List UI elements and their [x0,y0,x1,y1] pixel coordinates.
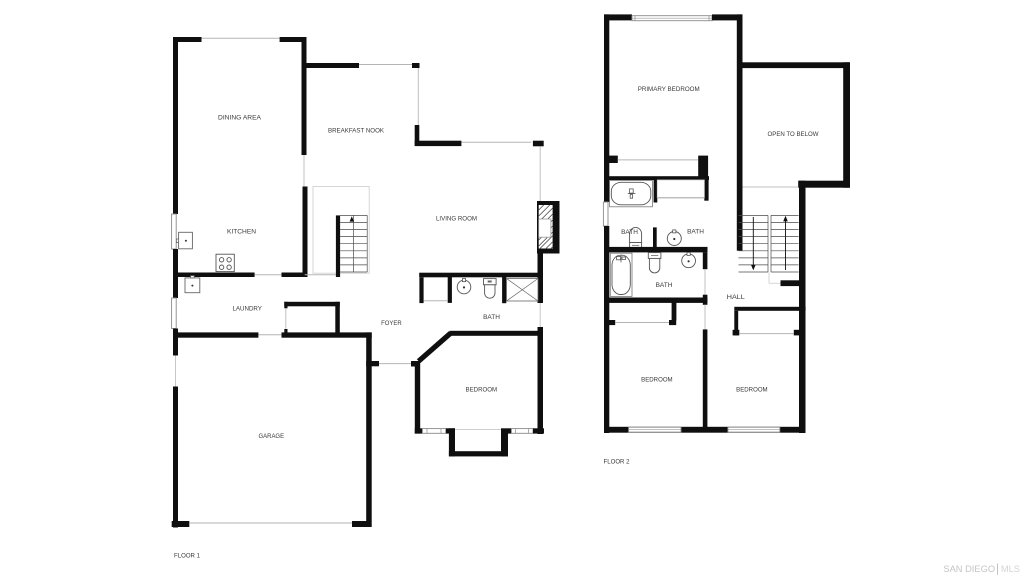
svg-text:BEDROOM: BEDROOM [736,387,768,394]
svg-text:BATH: BATH [483,314,500,321]
svg-text:SAN DIEGO│MLS: SAN DIEGO│MLS [943,563,1020,575]
svg-text:FOYER: FOYER [381,320,402,327]
svg-text:BREAKFAST NOOK: BREAKFAST NOOK [328,128,385,135]
svg-text:BATH: BATH [621,229,638,236]
svg-text:FLOOR 2: FLOOR 2 [604,459,630,466]
svg-text:PRIMARY BEDROOM: PRIMARY BEDROOM [638,86,700,93]
svg-text:DINING AREA: DINING AREA [218,115,262,122]
svg-text:BEDROOM: BEDROOM [641,377,673,384]
svg-text:BATH: BATH [687,228,704,235]
svg-text:GARAGE: GARAGE [259,433,285,440]
svg-text:FLOOR 1: FLOOR 1 [174,553,200,560]
svg-text:LIVING ROOM: LIVING ROOM [436,216,477,223]
svg-text:OPEN TO BELOW: OPEN TO BELOW [768,131,820,138]
svg-text:LAUNDRY: LAUNDRY [232,306,262,313]
svg-text:BATH: BATH [656,282,673,289]
svg-text:KITCHEN: KITCHEN [227,229,256,236]
svg-text:BEDROOM: BEDROOM [466,387,498,394]
svg-text:HALL: HALL [727,294,745,301]
